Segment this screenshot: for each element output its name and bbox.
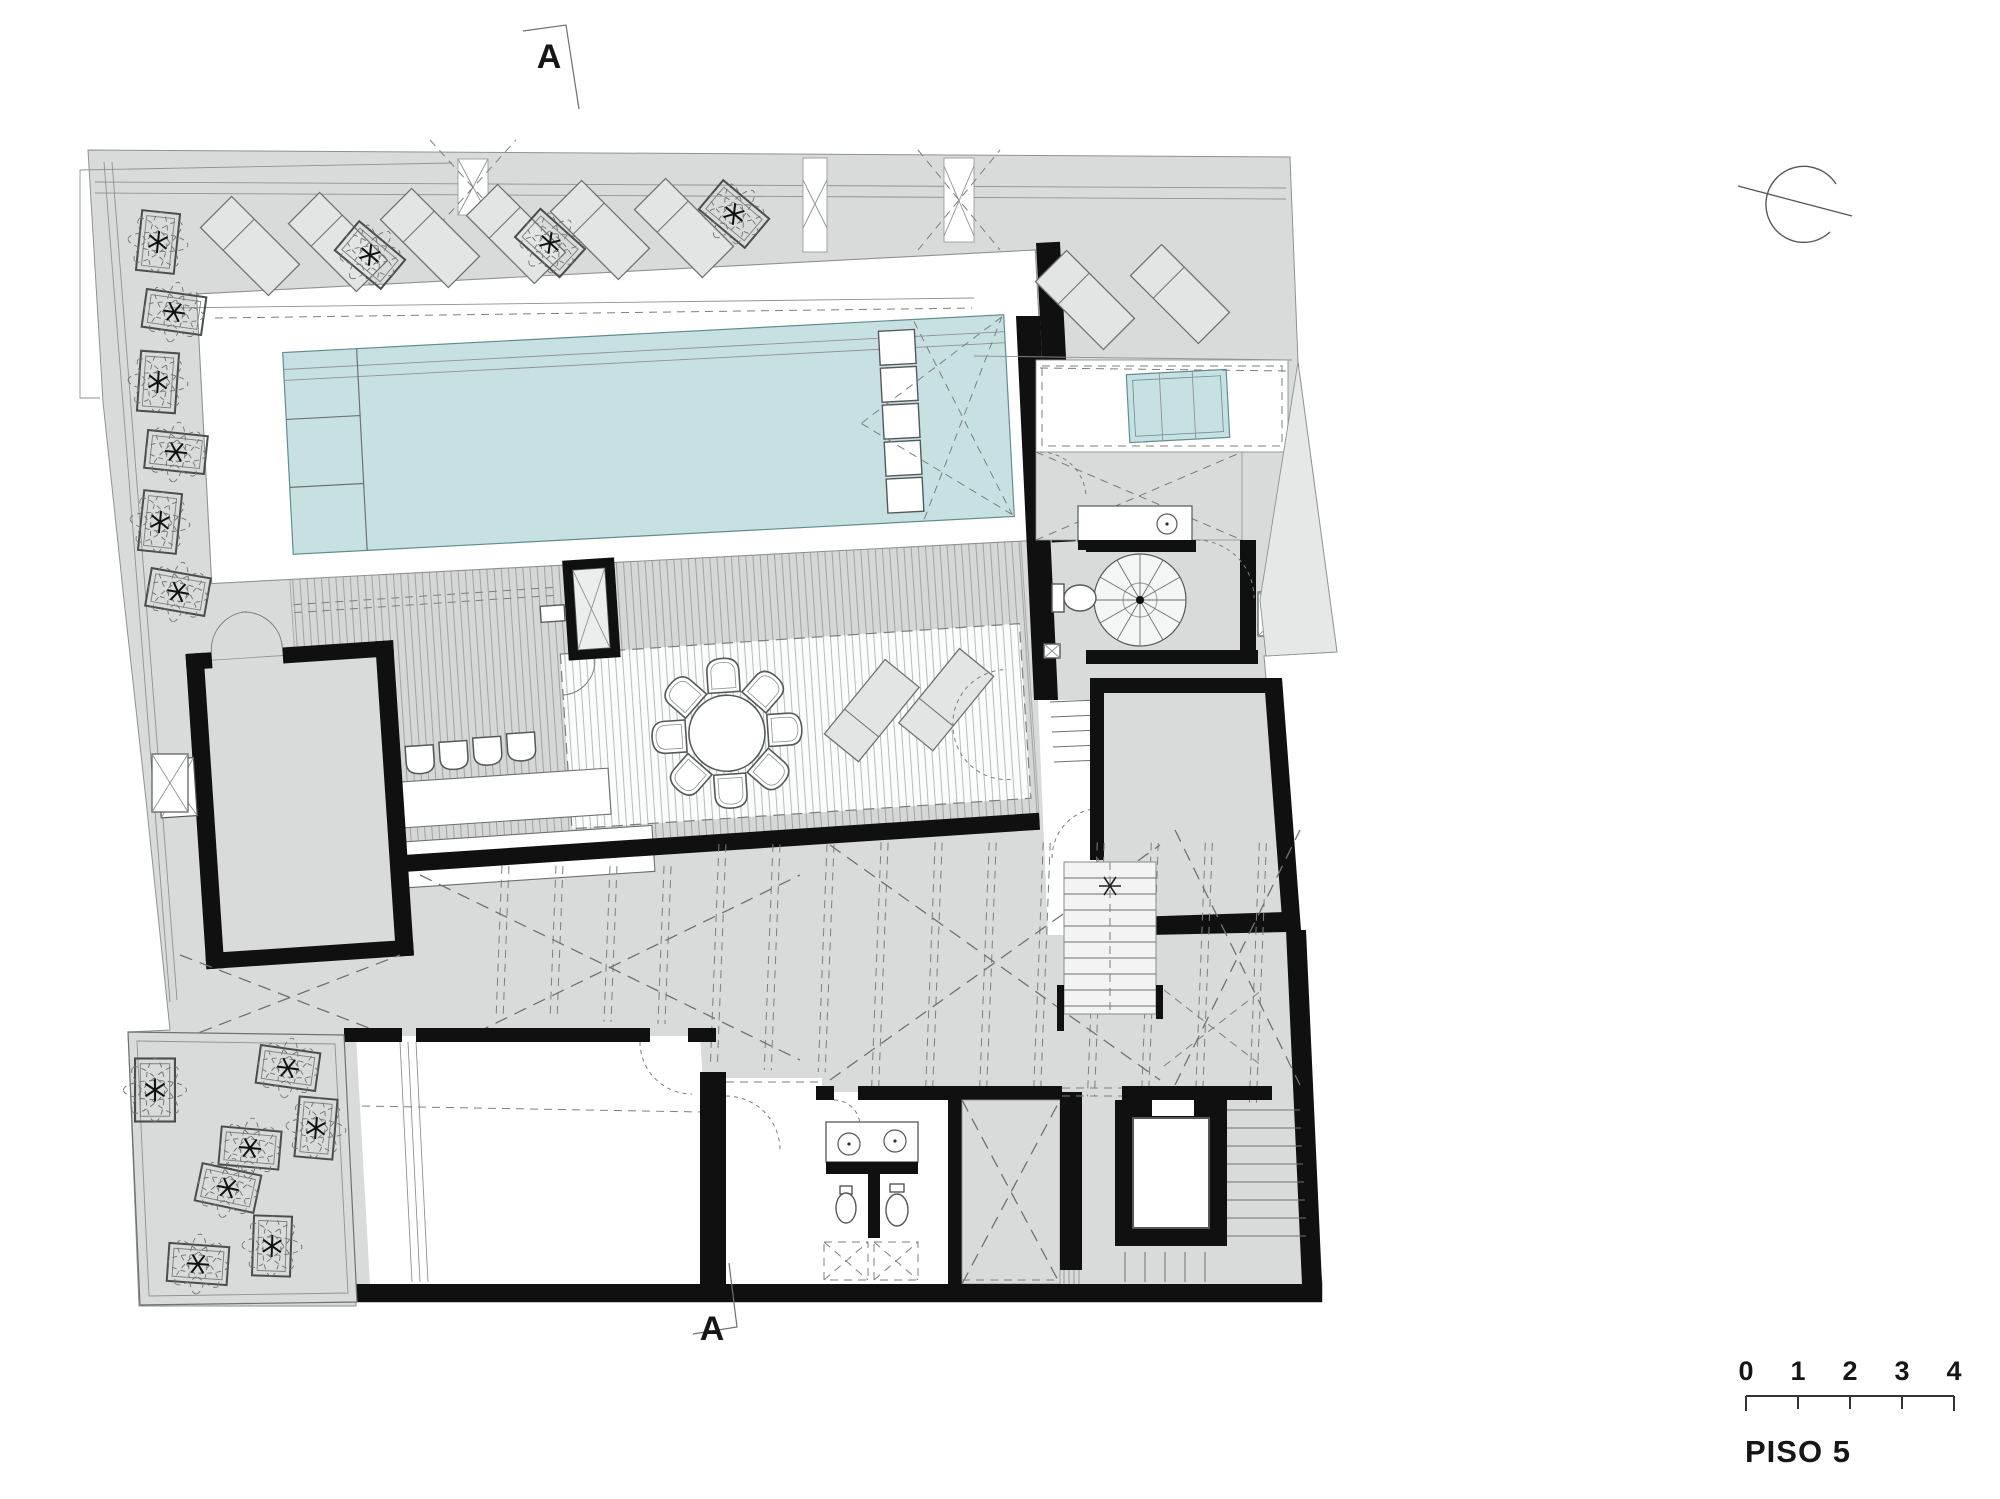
elevator: [1115, 1100, 1227, 1246]
scale-tick-2: 2: [1842, 1356, 1857, 1386]
floor-plan-canvas: A A 0 1 2 3 4 PISO 5: [0, 0, 2000, 1499]
floor-plan-page: A A 0 1 2 3 4 PISO 5: [0, 0, 2000, 1499]
spiral-staircase: [1094, 554, 1186, 646]
south-boundary-wall: [356, 1284, 1322, 1302]
scale-tick-4: 4: [1946, 1356, 1961, 1386]
floor-label: PISO 5: [1745, 1434, 1851, 1469]
vestibule: [716, 1078, 822, 1284]
jacuzzi: [1126, 369, 1229, 442]
storage-room: [1036, 452, 1242, 550]
scale-bar: 0 1 2 3 4 PISO 5: [1738, 1356, 1961, 1469]
pool-area: [196, 242, 1076, 587]
jacuzzi-room: [1036, 360, 1288, 452]
scale-tick-0: 0: [1738, 1356, 1753, 1386]
sink-counter: [826, 1122, 918, 1162]
section-letter-bottom: A: [700, 1310, 725, 1348]
section-letter-top: A: [537, 38, 562, 76]
scale-tick-1: 1: [1790, 1356, 1805, 1386]
floor-plan: [80, 140, 1337, 1306]
duct-box-strip: [152, 754, 188, 812]
service-shaft: [962, 1092, 1082, 1284]
section-marker-top: A: [523, 25, 579, 109]
toilet-fixture: [1052, 584, 1096, 612]
north-indicator-icon: [1738, 166, 1852, 242]
vanity-counter: [1078, 506, 1192, 542]
southwest-terrace: [124, 1032, 358, 1305]
scale-tick-3: 3: [1894, 1356, 1909, 1386]
